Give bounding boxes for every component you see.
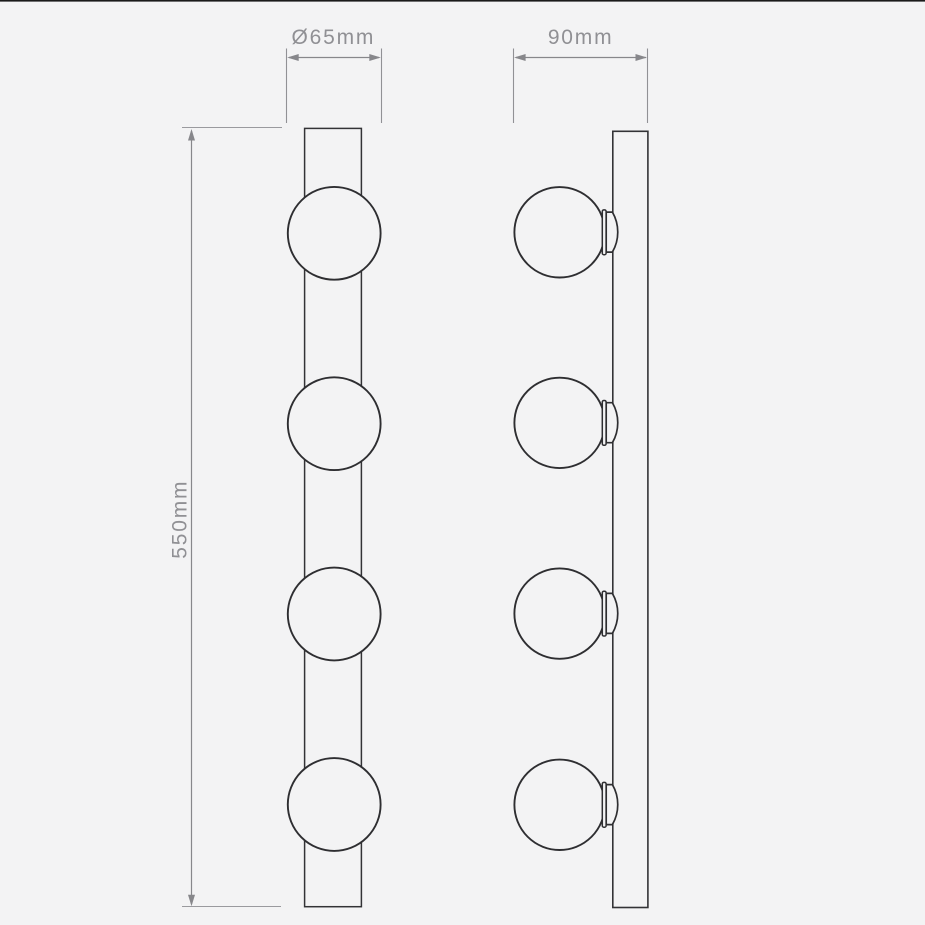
svg-text:90mm: 90mm xyxy=(548,26,614,49)
svg-text:Ø65mm: Ø65mm xyxy=(292,26,376,49)
svg-text:550mm: 550mm xyxy=(168,480,191,559)
